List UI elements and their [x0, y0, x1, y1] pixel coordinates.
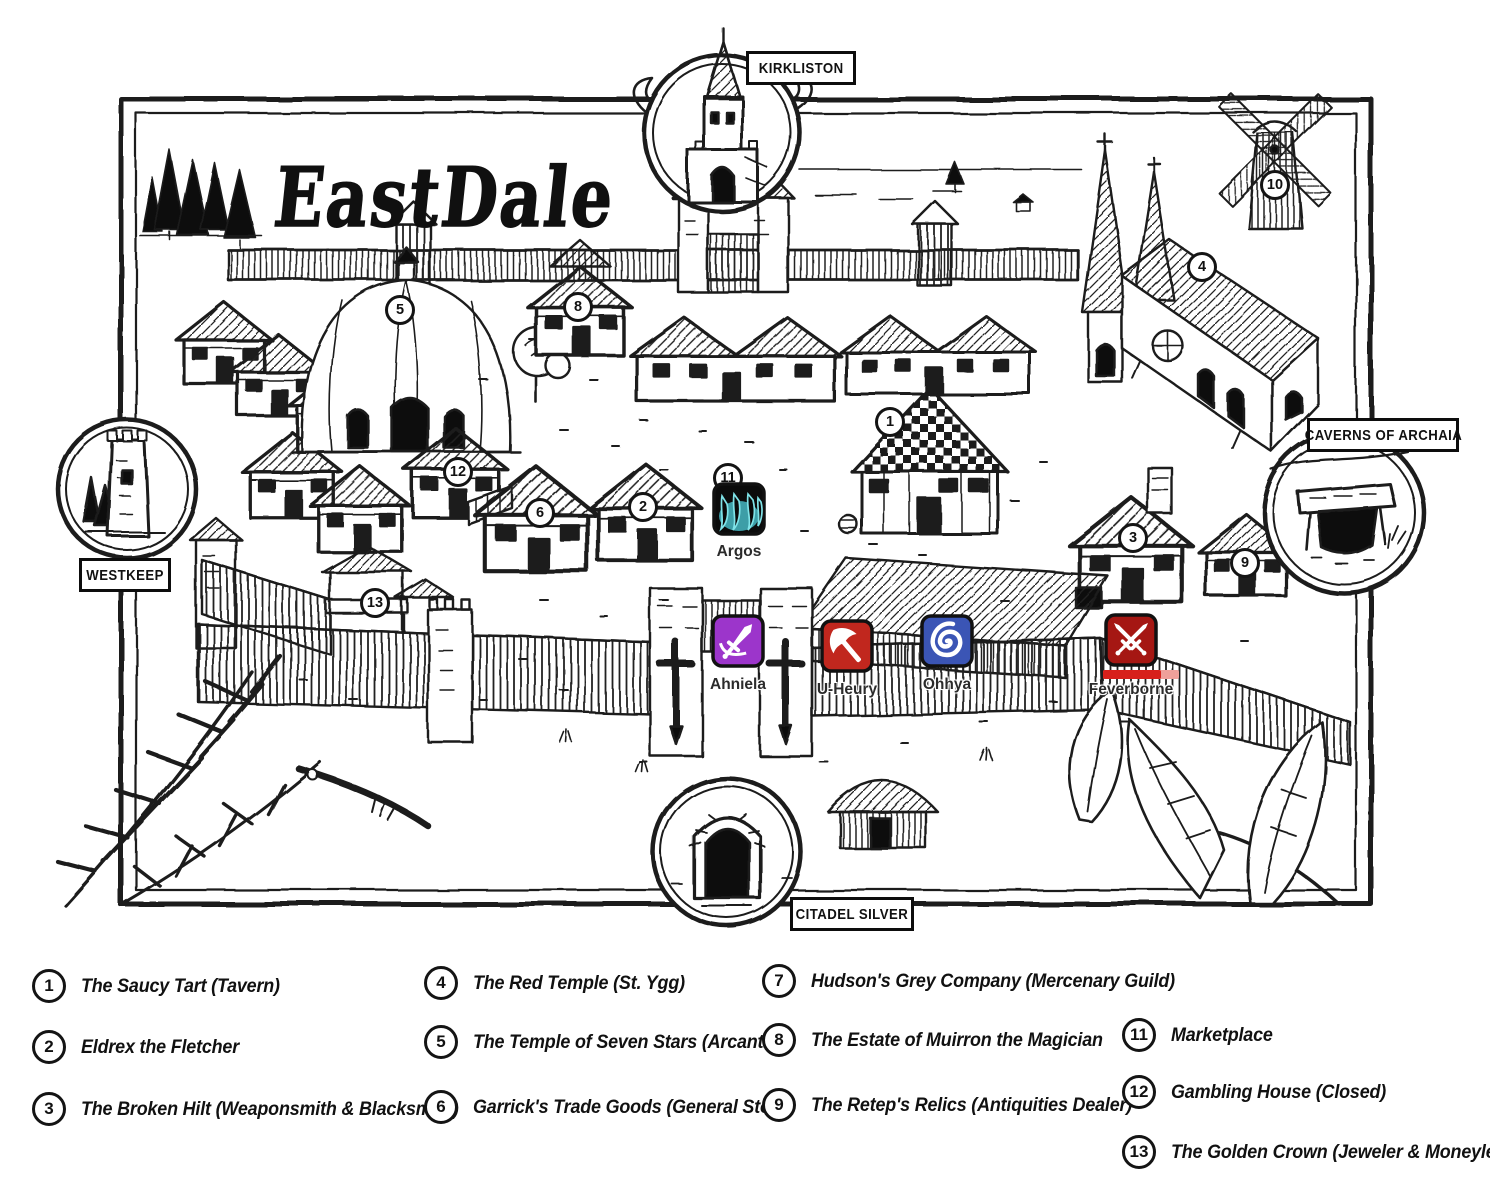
legend-item-8: 8 The Estate of Muirron the Magician [762, 1023, 1128, 1057]
legend-item-9: 9 The Retep's Relics (Antiquities Dealer… [762, 1088, 1160, 1122]
legend-item-13: 13 The Golden Crown (Jeweler & Moneylend… [1122, 1135, 1490, 1169]
tavern [839, 388, 1008, 534]
legend-num-9: 9 [762, 1088, 796, 1122]
crossed-swords-icon [1104, 613, 1158, 667]
map-marker-12: 12 [443, 457, 473, 487]
exit-label-citadel-silver: CITADEL SILVER [790, 897, 914, 931]
vignette-caverns [1264, 433, 1424, 593]
claws-icon [712, 482, 766, 536]
token-ahniela[interactable] [711, 614, 765, 668]
spiral-icon [920, 614, 974, 668]
town-map: EastDale [0, 0, 1490, 950]
cottage [828, 781, 938, 848]
token-label-argos: Argos [664, 543, 814, 561]
legend-item-5: 5 The Temple of Seven Stars (Arcantryl) [424, 1025, 818, 1059]
map-marker-2: 2 [628, 492, 658, 522]
vignette-citadel-silver [653, 778, 801, 926]
legend-item-12: 12 Gambling House (Closed) [1122, 1075, 1405, 1109]
pine-forest [140, 150, 262, 248]
dagger-icon [711, 614, 765, 668]
legend-num-5: 5 [424, 1025, 458, 1059]
exit-label-kirkliston: KIRKLISTON [746, 51, 856, 85]
vignette-westkeep [58, 420, 196, 558]
legend-num-12: 12 [1122, 1075, 1156, 1109]
legend-item-7: 7 Hudson's Grey Company (Mercenary Guild… [762, 964, 1207, 998]
legend-num-8: 8 [762, 1023, 796, 1057]
map-marker-9: 9 [1230, 548, 1260, 578]
token-ohhya[interactable] [920, 614, 974, 668]
legend-item-3: 3 The Broken Hilt (Weaponsmith & Blacksm… [32, 1092, 492, 1126]
exit-label-caverns-of-archaia: CAVERNS OF ARCHAIA [1307, 418, 1459, 452]
windmill [1219, 94, 1331, 228]
legend-item-11: 11 Marketplace [1122, 1018, 1282, 1052]
map-marker-8: 8 [563, 292, 593, 322]
map-marker-5: 5 [385, 295, 415, 325]
legend-num-2: 2 [32, 1030, 66, 1064]
map-marker-13: 13 [360, 588, 390, 618]
legend-item-4: 4 The Red Temple (St. Ygg) [424, 966, 703, 1000]
map-marker-6: 6 [525, 498, 555, 528]
map-marker-4: 4 [1187, 252, 1217, 282]
legend-num-3: 3 [32, 1092, 66, 1126]
token-label-ohhya: Ohhya [872, 676, 1022, 694]
map-marker-3: 3 [1118, 523, 1148, 553]
legend-num-4: 4 [424, 966, 458, 1000]
horizon [800, 162, 1082, 211]
feverborne-health-bar [1103, 670, 1179, 679]
token-feverborne[interactable] [1104, 613, 1158, 667]
eastdale-map-screen: EastDale KIRKLISTON WESTKEEP CAVERNS OF … [0, 0, 1490, 1180]
legend-num-7: 7 [762, 964, 796, 998]
token-argos[interactable] [712, 482, 766, 536]
legend-num-11: 11 [1122, 1018, 1156, 1052]
map-marker-1: 1 [875, 407, 905, 437]
battle-axe-icon [820, 619, 874, 673]
legend-num-1: 1 [32, 969, 66, 1003]
exit-label-westkeep: WESTKEEP [79, 558, 171, 592]
token-u-heury[interactable] [820, 619, 874, 673]
legend-num-13: 13 [1122, 1135, 1156, 1169]
legend-item-2: 2 Eldrex the Fletcher [32, 1030, 253, 1064]
legend-item-1: 1 The Saucy Tart (Tavern) [32, 969, 297, 1003]
legend-num-6: 6 [424, 1090, 458, 1124]
map-marker-10: 10 [1260, 170, 1290, 200]
token-label-feverborne: Feverborne [1056, 681, 1206, 699]
map-title: EastDale [270, 150, 620, 246]
